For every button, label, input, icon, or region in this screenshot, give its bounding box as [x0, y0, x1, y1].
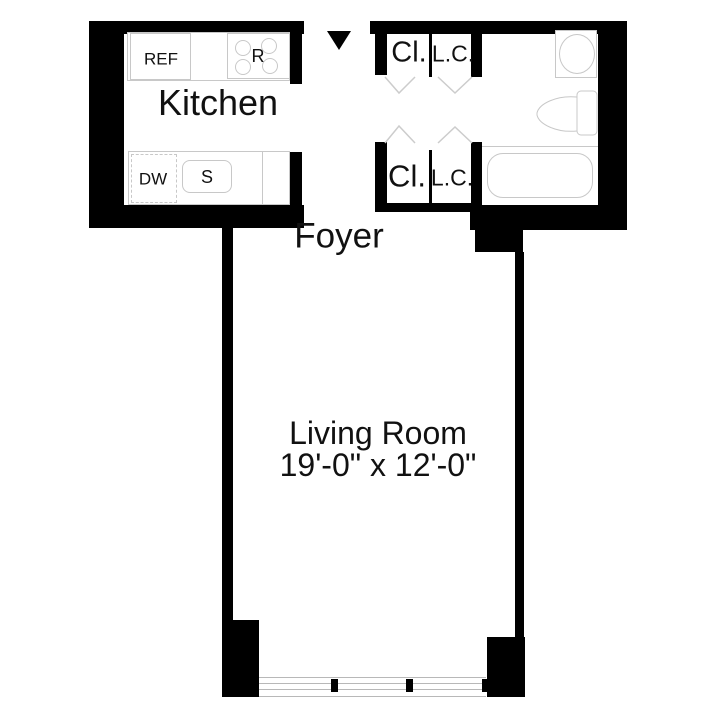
vanity-basin	[559, 34, 595, 74]
window-line	[259, 683, 486, 684]
door-swing-icon	[385, 77, 415, 93]
window-line	[259, 677, 486, 678]
bottom-linen-closet-label: L.C.	[431, 167, 473, 190]
wall-bathroom-right	[598, 21, 627, 230]
toilet-tank	[577, 91, 597, 135]
sink-label: S	[201, 168, 213, 186]
wall-top-closet-left	[375, 34, 387, 75]
top-linen-closet-label: L.C.	[432, 43, 474, 66]
toilet-bowl	[537, 97, 577, 132]
door-swing-icon	[438, 77, 472, 93]
bathtub	[487, 153, 593, 198]
wall-kitchen-right-upper	[290, 21, 302, 84]
entry-arrow-icon	[327, 31, 351, 50]
bottom-closet-label: Cl.	[388, 161, 426, 192]
wall-living-right-block	[487, 637, 525, 697]
range-label: R	[252, 47, 265, 65]
kitchen-label: Kitchen	[158, 85, 278, 121]
wall-living-left	[222, 228, 233, 620]
wall-kitchen-left	[89, 21, 124, 228]
window-mullion	[331, 679, 338, 692]
counter-segment-line	[262, 151, 263, 205]
floor-plan: Kitchen Foyer Living Room 19'-0" x 12'-0…	[0, 0, 720, 720]
wall-closet-bottom	[375, 203, 473, 212]
wall-bottom-closet-left	[375, 142, 387, 210]
burner-icon	[235, 59, 251, 75]
wall-step-block	[475, 230, 523, 252]
refrigerator-label: REF	[144, 51, 178, 68]
dishwasher-label: DW	[139, 171, 167, 188]
foyer-label: Foyer	[294, 219, 383, 254]
window-mullion	[406, 679, 413, 692]
door-swing-icon	[385, 126, 415, 143]
door-swing-icon	[438, 127, 472, 143]
window-line	[259, 689, 486, 690]
wall-living-left-block	[222, 620, 259, 697]
living-room-dimensions: 19'-0" x 12'-0"	[280, 449, 477, 481]
wall-kitchen-bottom	[89, 205, 304, 228]
living-room-label: Living Room	[289, 417, 467, 449]
burner-icon	[235, 40, 251, 56]
window-mullion	[482, 679, 487, 692]
top-closet-label: Cl.	[391, 39, 426, 68]
wall-bathroom-bottom	[470, 205, 627, 230]
window-line	[259, 696, 486, 697]
wall-kitchen-right-lower	[290, 152, 302, 205]
bathroom-divider-line	[482, 146, 598, 147]
wall-living-right	[515, 252, 524, 637]
